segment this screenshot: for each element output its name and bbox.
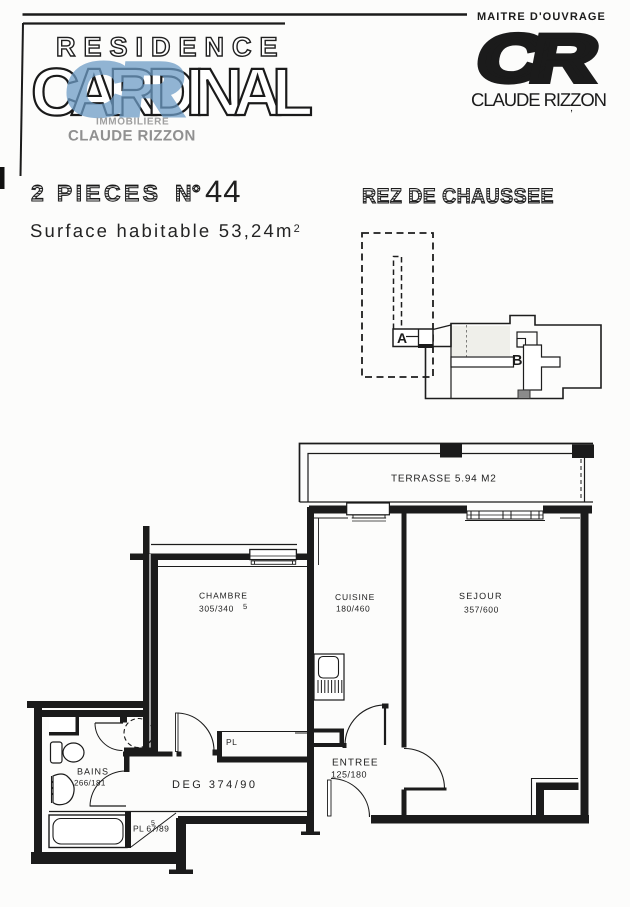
svg-text:CLAUDE RIZZON: CLAUDE RIZZON xyxy=(68,128,196,145)
svg-text:125/180: 125/180 xyxy=(331,770,367,780)
svg-text:B: B xyxy=(512,353,522,369)
svg-text:A: A xyxy=(397,330,407,346)
svg-text:5: 5 xyxy=(243,602,247,611)
svg-text:5: 5 xyxy=(151,820,155,827)
svg-text:2 PIECES: 2 PIECES xyxy=(31,180,161,206)
svg-text:266/181: 266/181 xyxy=(74,779,106,788)
svg-text:DEG 374/90: DEG 374/90 xyxy=(172,779,258,791)
svg-text:CLAUDE RIZZON: CLAUDE RIZZON xyxy=(471,89,607,110)
svg-text:Surface habitable 53,24m2: Surface habitable 53,24m2 xyxy=(30,220,302,241)
svg-text:REZ DE CHAUSSEE: REZ DE CHAUSSEE xyxy=(362,185,554,208)
svg-text:IMMOBILIERE: IMMOBILIERE xyxy=(96,117,169,128)
svg-text:BAINS: BAINS xyxy=(77,767,109,777)
svg-text:CHAMBRE: CHAMBRE xyxy=(199,591,248,601)
svg-text:305/340: 305/340 xyxy=(199,604,234,614)
svg-text:TERRASSE 5.94 M2: TERRASSE 5.94 M2 xyxy=(391,474,497,485)
svg-text:357/600: 357/600 xyxy=(464,605,499,615)
svg-text:CUISINE: CUISINE xyxy=(335,592,375,602)
svg-text:PL: PL xyxy=(226,737,237,747)
svg-text:180/460: 180/460 xyxy=(336,604,370,614)
svg-text:ENTREE: ENTREE xyxy=(332,758,379,769)
svg-text:SEJOUR: SEJOUR xyxy=(459,591,503,601)
svg-text:,: , xyxy=(570,102,573,114)
svg-text:N°: N° xyxy=(175,180,201,206)
svg-text:44: 44 xyxy=(205,174,241,209)
